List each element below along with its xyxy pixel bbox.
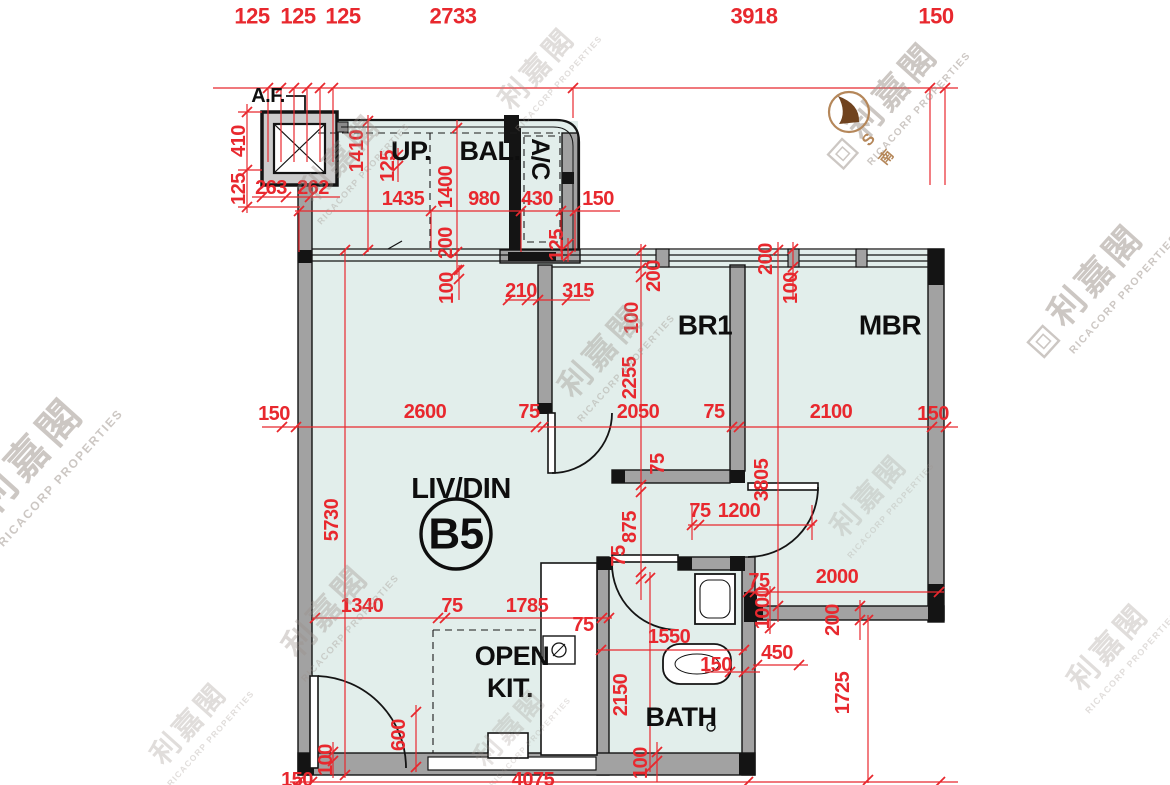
dimension-label: 75 xyxy=(572,614,594,636)
dimension-label: 1200 xyxy=(718,500,761,522)
dimension-label: 1435 xyxy=(382,188,425,210)
dimension-label: 263 xyxy=(255,177,287,199)
dimension-label: 2600 xyxy=(404,401,447,423)
dimension-label: 2100 xyxy=(810,401,853,423)
s-corner xyxy=(739,753,755,775)
dimension-label: 430 xyxy=(521,188,553,210)
dimension-label: 150 xyxy=(258,403,290,425)
dimension-label: 150 xyxy=(917,403,949,425)
dimension-label: 150 xyxy=(700,654,732,676)
unit-badge-label: B5 xyxy=(428,510,483,559)
dimension-label: 4075 xyxy=(512,769,555,785)
dimension-label: 100 xyxy=(780,272,802,304)
dimension-label: 450 xyxy=(761,642,793,664)
watermark: 利嘉閣RICACORP PROPERTIES xyxy=(1054,584,1170,716)
watermark: 利嘉閣RICACORP PROPERTIES xyxy=(486,9,604,133)
dimension-label: 1400 xyxy=(435,165,457,208)
west-wall-cap xyxy=(298,250,312,263)
watermark: 利嘉閣RICACORP PROPERTIES xyxy=(138,664,256,785)
dimension-label: 200 xyxy=(755,243,777,275)
dimension-label: 2733 xyxy=(430,4,477,29)
mbr-door-jamb-bottom xyxy=(730,556,745,571)
watermark-logo-icon-inner xyxy=(1036,334,1050,348)
dimension-label: 1000 xyxy=(752,586,774,629)
dimension-label: 150 xyxy=(281,769,313,785)
dimension-label: 875 xyxy=(619,511,641,543)
room-label: LIV/DIN xyxy=(411,473,511,505)
dimension-label: 600 xyxy=(388,719,410,751)
dimension-label: 410 xyxy=(228,125,250,157)
bath-left-wall xyxy=(597,557,609,775)
dimension-label: 100 xyxy=(630,747,652,779)
dimension-label: 125 xyxy=(546,229,568,261)
dimension-label: 100 xyxy=(436,272,458,304)
dimension-label: 315 xyxy=(562,280,594,302)
dimension-label: 3918 xyxy=(731,4,778,29)
bath-door-hinge xyxy=(678,557,692,570)
dimension-label: 125 xyxy=(280,4,315,29)
dimension-label: 100 xyxy=(315,744,337,776)
dimension-label: 5730 xyxy=(321,498,343,541)
room-label: MBR xyxy=(859,310,922,341)
floor-plan-canvas: B5 1251251252733391815041012526326214359… xyxy=(0,0,1170,785)
br1-door-stop xyxy=(612,470,625,483)
dimension-label: 75 xyxy=(689,500,711,522)
dimension-label: 980 xyxy=(468,188,500,210)
dim-tick xyxy=(743,777,753,785)
dimension-label: 2050 xyxy=(617,401,660,423)
dimension-label: 3805 xyxy=(751,458,773,501)
watermark: 利嘉閣RICACORP PROPERTIES xyxy=(1017,200,1170,373)
room-label: BR1 xyxy=(678,310,733,341)
watermark-logo-icon xyxy=(828,139,858,169)
dimension-label: 125 xyxy=(325,4,360,29)
watermark-logo-icon xyxy=(1028,326,1059,357)
dimension-label: 150 xyxy=(582,188,614,210)
room-label: BAL. xyxy=(460,136,521,166)
toilet-icon xyxy=(695,574,735,624)
dimension-label: 125 xyxy=(234,4,269,29)
dimension-label: 75 xyxy=(441,595,463,617)
window-mullion xyxy=(856,249,867,267)
room-label: BATH xyxy=(646,702,717,732)
liv-br1-wall xyxy=(538,265,552,413)
dimension-label: 125 xyxy=(228,173,250,205)
dimension-label: 75 xyxy=(647,453,669,475)
br1-mbr-wall xyxy=(730,265,745,471)
af-leader-line xyxy=(286,96,305,112)
dimension-label: 200 xyxy=(822,604,844,636)
dimension-label: 2150 xyxy=(610,673,632,716)
dimension-label: 210 xyxy=(505,280,537,302)
mbr-door-jamb-top xyxy=(730,470,745,483)
dimension-label: 75 xyxy=(518,401,540,423)
dimension-label: 1550 xyxy=(648,626,691,648)
br1-door-leaf xyxy=(548,413,555,473)
room-label: A.F. xyxy=(251,85,285,107)
dimension-label: 75 xyxy=(608,545,630,567)
dimension-label: 1725 xyxy=(832,671,854,714)
dimension-label: 200 xyxy=(435,227,457,259)
br1-bottom-wall xyxy=(612,470,730,483)
ac-wall-block xyxy=(562,172,574,184)
watermark: 利嘉閣RICACORP PROPERTIES xyxy=(0,370,126,568)
room-label: OPEN xyxy=(475,641,550,671)
dimension-label: 150 xyxy=(918,4,953,29)
dimension-label: 2000 xyxy=(816,566,859,588)
dimension-label: 200 xyxy=(643,260,665,292)
dim-tick xyxy=(935,777,945,785)
watermark-logo-icon-inner xyxy=(836,147,849,160)
dimension-label: 75 xyxy=(703,401,725,423)
dimension-label: 1785 xyxy=(506,595,549,617)
floor-plan: B5 1251251252733391815041012526326214359… xyxy=(0,0,1170,785)
east-wall xyxy=(928,249,944,622)
room-label: A/C xyxy=(526,138,554,180)
